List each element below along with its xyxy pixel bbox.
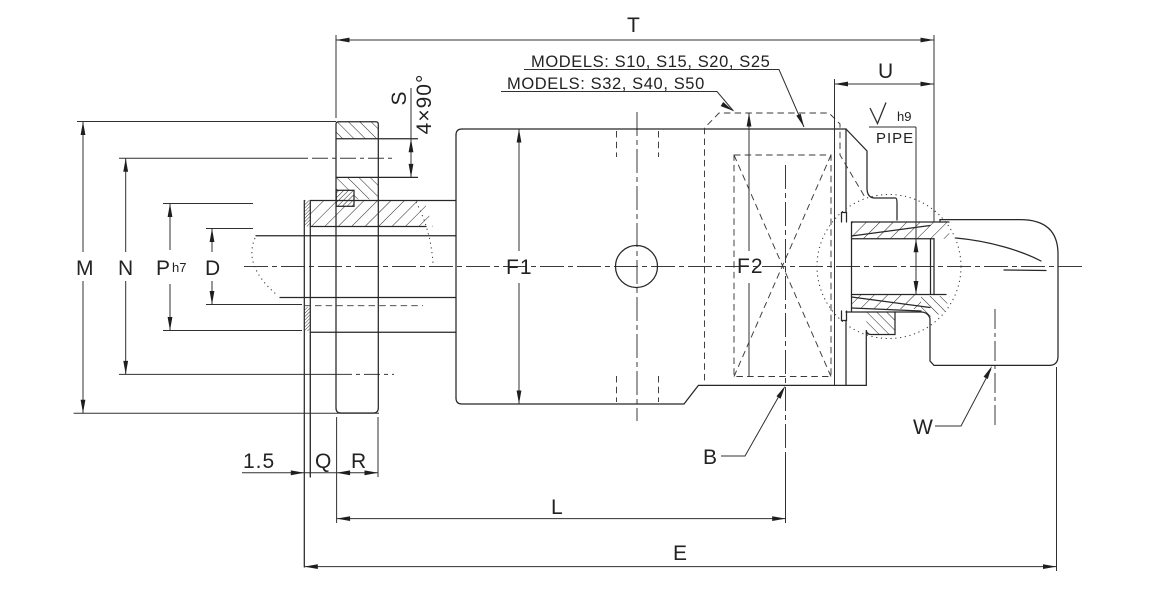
- svg-text:T: T: [627, 14, 641, 37]
- svg-text:L: L: [551, 496, 564, 519]
- svg-text:U: U: [878, 60, 894, 83]
- svg-text:R: R: [351, 450, 367, 473]
- svg-text:S: S: [388, 90, 411, 105]
- svg-text:F1: F1: [506, 256, 533, 279]
- svg-text:PIPE: PIPE: [876, 130, 914, 147]
- svg-text:h9: h9: [897, 109, 911, 124]
- svg-text:D: D: [205, 257, 221, 280]
- svg-text:W: W: [913, 416, 934, 439]
- svg-text:MODELS: S10, S15, S20, S25: MODELS: S10, S15, S20, S25: [531, 53, 770, 71]
- svg-text:1.5: 1.5: [243, 450, 275, 473]
- svg-text:MODELS: S32, S40, S50: MODELS: S32, S40, S50: [507, 75, 705, 93]
- svg-text:N: N: [118, 257, 134, 280]
- svg-text:h7: h7: [172, 260, 186, 275]
- svg-text:M: M: [76, 257, 95, 280]
- svg-text:F2: F2: [737, 255, 764, 278]
- svg-text:4×90°: 4×90°: [413, 74, 436, 135]
- svg-text:E: E: [673, 542, 688, 565]
- svg-text:B: B: [703, 446, 718, 469]
- svg-text:P: P: [156, 257, 171, 280]
- svg-text:Q: Q: [315, 450, 332, 473]
